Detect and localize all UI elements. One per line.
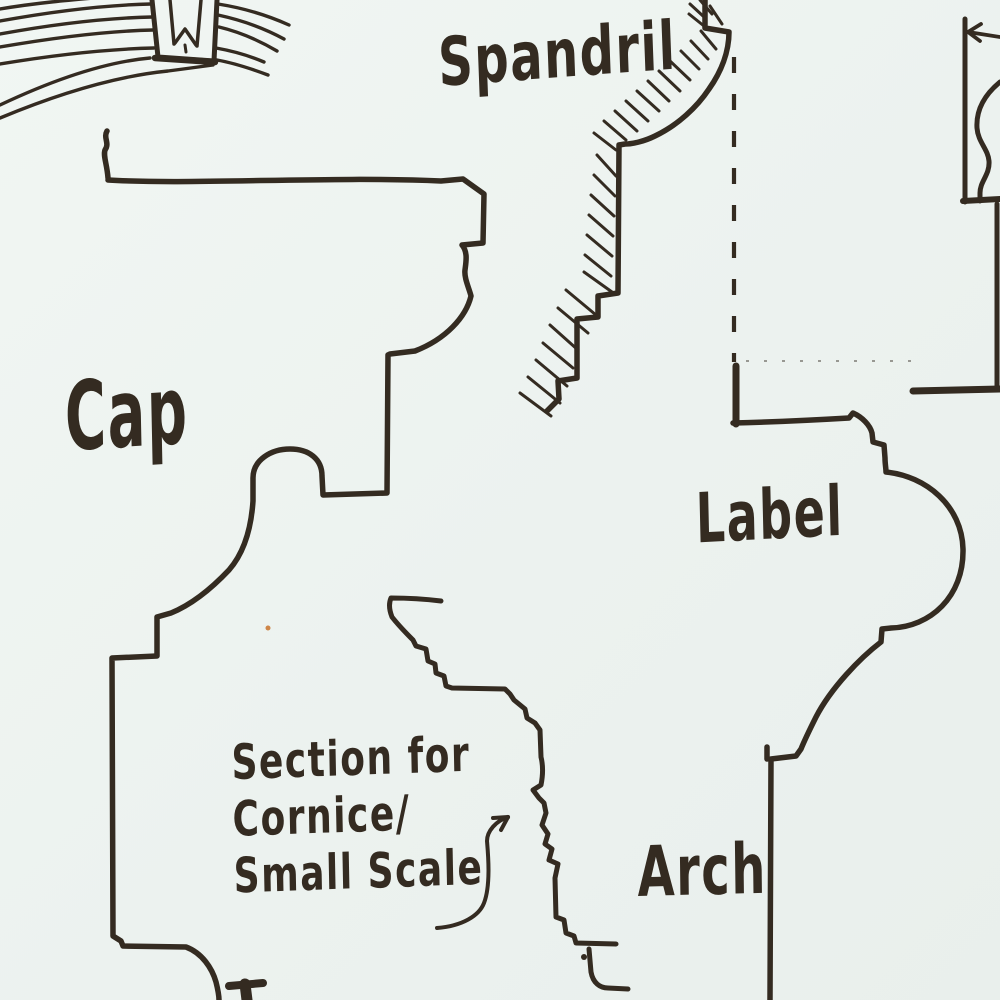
section-note-line3: Small Scale [233,841,484,907]
label-molding-label: Label [695,476,844,553]
dimension-arrow [968,24,1000,41]
cap-label: Cap [64,365,189,467]
label-profile [733,366,963,1000]
section-note-line2: Cornice/ [232,784,483,850]
paper-speck [266,626,271,631]
sketch-sheet: Spandril Cap Label Arch Section for Corn… [0,0,1000,1000]
jamb-box [913,19,1000,391]
section-note-line1: Section for [231,727,482,793]
keystone [152,0,217,62]
section-note: Section for Cornice/ Small Scale [231,727,484,906]
cap-base-mark [229,983,263,1000]
spandril-label: Spandril [437,13,678,98]
drawing-linework [0,0,1000,1000]
arch-rings [0,0,289,118]
arch-label: Arch [637,835,767,908]
